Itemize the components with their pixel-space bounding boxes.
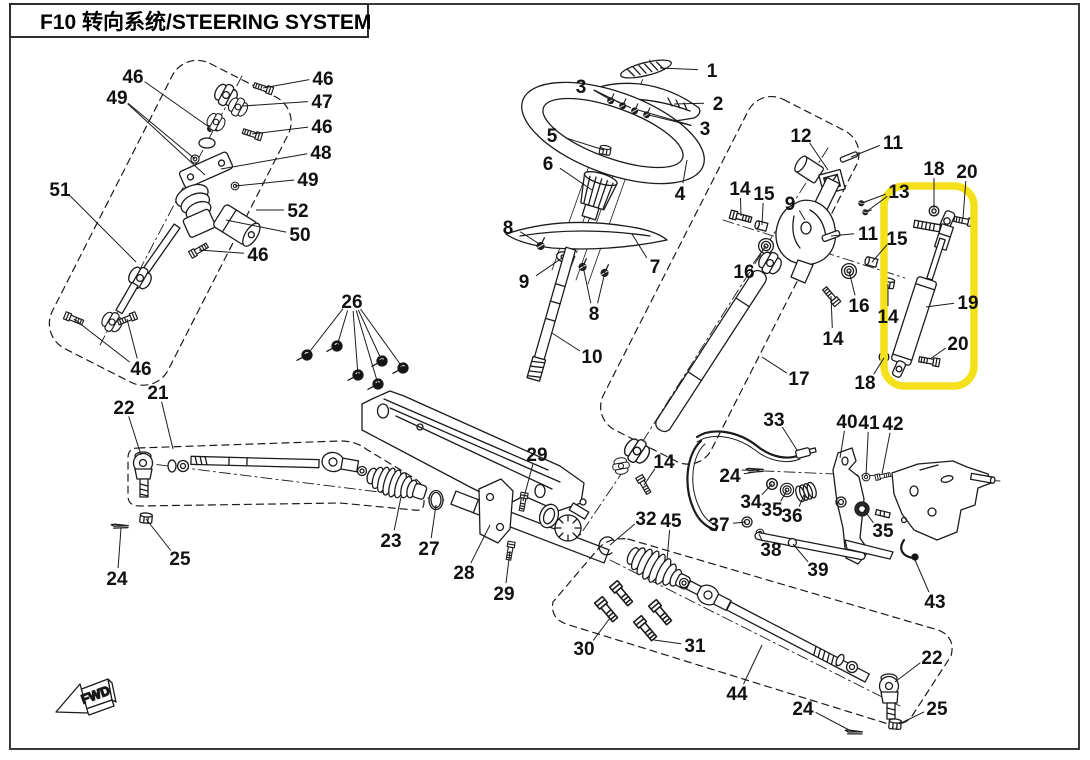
part-label-10: 10: [581, 347, 602, 368]
part-label-13: 13: [888, 182, 909, 203]
part-label-15: 15: [753, 184, 775, 205]
part-label-49: 49: [106, 88, 127, 109]
part-label-27: 27: [418, 539, 439, 560]
part-label-9: 9: [785, 194, 796, 215]
part-label-48: 48: [310, 143, 331, 164]
part-label-38: 38: [760, 540, 781, 561]
part-label-46: 46: [130, 359, 151, 380]
part-label-8: 8: [589, 304, 600, 325]
part-label-14: 14: [653, 452, 675, 473]
part-label-29: 29: [526, 445, 547, 466]
part-label-11: 11: [858, 224, 879, 245]
part-label-52: 52: [287, 201, 308, 222]
part-label-18: 18: [854, 373, 875, 394]
part-label-47: 47: [311, 92, 332, 113]
part-label-16: 16: [848, 296, 869, 317]
part-label-22: 22: [921, 648, 942, 669]
part-label-31: 31: [684, 636, 706, 657]
part-label-49: 49: [297, 170, 318, 191]
part-label-9: 9: [519, 272, 530, 293]
part-label-41: 41: [858, 413, 880, 434]
part-label-32: 32: [635, 509, 656, 530]
part-label-50: 50: [289, 225, 310, 246]
part-label-18: 18: [923, 159, 944, 180]
part-label-19: 19: [957, 293, 978, 314]
part-label-46: 46: [122, 67, 143, 88]
part-label-35: 35: [761, 500, 783, 521]
part-label-6: 6: [543, 154, 554, 175]
part-label-3: 3: [700, 119, 711, 140]
part-label-5: 5: [547, 126, 558, 147]
part-label-14: 14: [822, 329, 844, 350]
part-label-33: 33: [763, 410, 784, 431]
diagram-canvas: F10 转向系统/STEERING SYSTEM: [0, 0, 1090, 760]
part-label-3: 3: [576, 77, 587, 98]
part-label-22: 22: [113, 398, 134, 419]
part-label-42: 42: [882, 414, 903, 435]
part-label-15: 15: [886, 229, 908, 250]
part-label-39: 39: [807, 560, 828, 581]
part-label-20: 20: [956, 162, 977, 183]
part-label-8: 8: [503, 218, 514, 239]
part-label-36: 36: [781, 506, 802, 527]
part-label-34: 34: [740, 492, 762, 513]
part-label-17: 17: [788, 369, 809, 390]
part-label-25: 25: [926, 699, 948, 720]
catalog-page: F10 转向系统/STEERING SYSTEM: [0, 0, 1090, 760]
part-label-29: 29: [493, 584, 514, 605]
part-label-20: 20: [947, 334, 968, 355]
part-label-14: 14: [877, 307, 899, 328]
part-label-11: 11: [883, 133, 904, 154]
part-label-35: 35: [872, 521, 894, 542]
part-label-26: 26: [341, 292, 362, 313]
part-label-51: 51: [49, 180, 71, 201]
part-label-37: 37: [708, 515, 729, 536]
part-label-44: 44: [726, 684, 748, 705]
part-label-30: 30: [573, 639, 594, 660]
part-label-23: 23: [380, 531, 401, 552]
part-label-24: 24: [106, 569, 128, 590]
part-label-24: 24: [792, 699, 814, 720]
part-label-45: 45: [660, 511, 682, 532]
part-label-46: 46: [312, 69, 333, 90]
part-label-14: 14: [729, 179, 751, 200]
part-label-12: 12: [790, 126, 811, 147]
part-label-25: 25: [169, 549, 191, 570]
part-label-46: 46: [311, 117, 332, 138]
part-label-24: 24: [719, 466, 741, 487]
part-label-1: 1: [707, 61, 718, 82]
part-label-16: 16: [733, 262, 754, 283]
part-label-4: 4: [675, 184, 686, 205]
page-title: F10 转向系统/STEERING SYSTEM: [40, 10, 371, 34]
part-label-46: 46: [247, 245, 268, 266]
part-label-7: 7: [650, 257, 661, 278]
part-label-40: 40: [836, 412, 857, 433]
part-label-21: 21: [147, 383, 169, 404]
part-label-28: 28: [453, 563, 474, 584]
part-label-43: 43: [924, 592, 945, 613]
part-label-2: 2: [713, 94, 724, 115]
